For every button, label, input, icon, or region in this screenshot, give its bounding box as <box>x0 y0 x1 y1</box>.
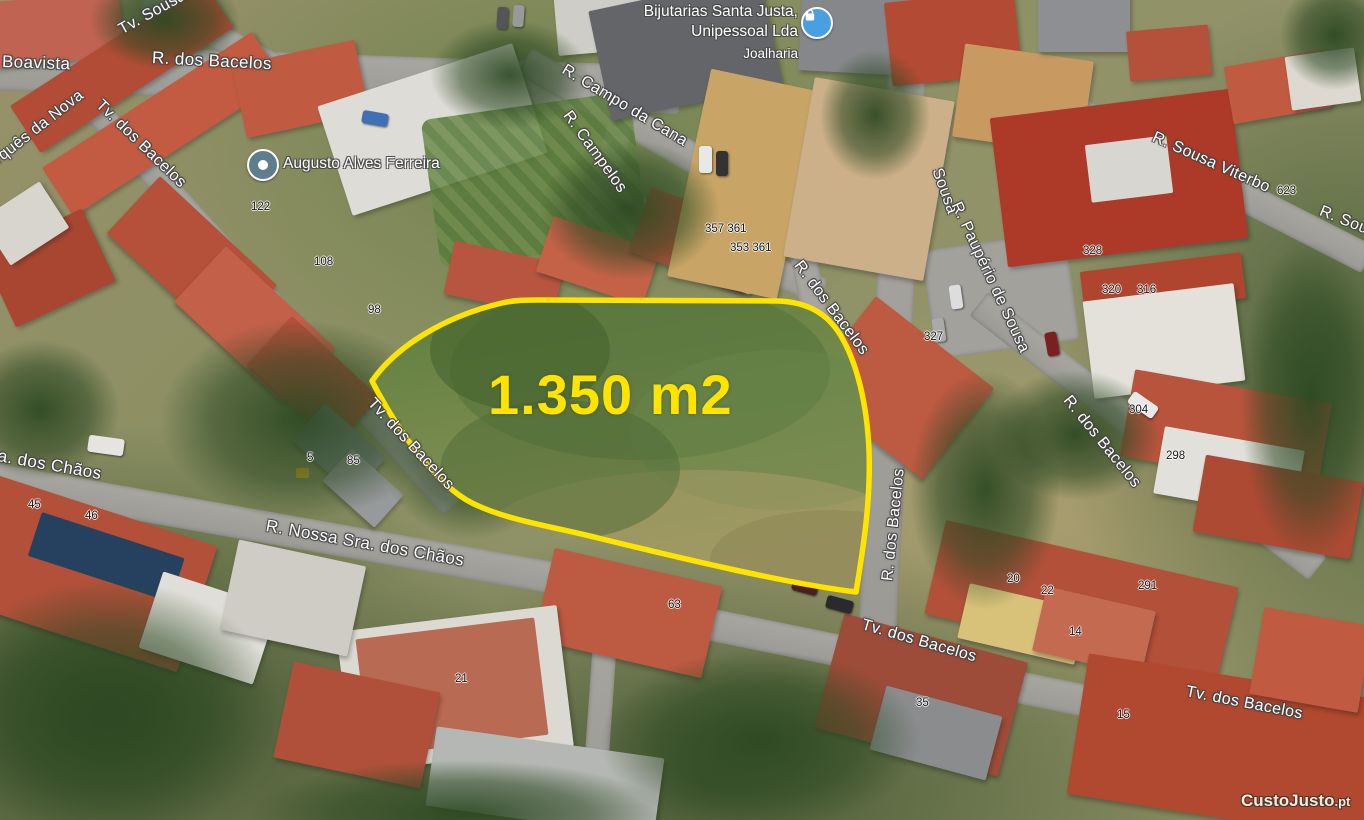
house-number: 298 <box>1166 450 1185 462</box>
poi-shop-category: Joalharia <box>598 46 798 61</box>
house-number: 46 <box>85 510 98 522</box>
house-number: 623 <box>1277 185 1296 197</box>
house-number: 35 <box>916 697 929 709</box>
house-number: 320 <box>1102 284 1121 296</box>
poi-shop-name-line1: Bijutarias Santa Justa, <box>598 2 798 22</box>
house-number: 328 <box>1083 245 1102 257</box>
house-number: 291 <box>1138 580 1157 592</box>
house-number: 20 <box>1007 573 1020 585</box>
house-number: 304 <box>1129 404 1148 416</box>
plot-area-label: 1.350 m2 <box>488 362 733 427</box>
house-number: 122 <box>251 201 270 213</box>
shopping-bag-icon <box>801 7 833 39</box>
house-number: 316 <box>1137 284 1156 296</box>
poi-shop-label: Bijutarias Santa Justa, Unipessoal Lda <box>598 2 798 42</box>
place-dot-icon <box>247 149 279 181</box>
house-number: 14 <box>1069 626 1082 638</box>
street-label: Boavista <box>2 52 71 74</box>
watermark-brand: CustoJusto <box>1241 791 1335 810</box>
house-number: 21 <box>455 673 468 685</box>
watermark: CustoJusto.pt <box>1241 791 1350 811</box>
house-number: 357 361 <box>705 223 747 235</box>
aerial-map: Boavista R. dos Bacelos Tv. Sousa rquês … <box>0 0 1364 820</box>
house-number: 5 <box>307 452 313 464</box>
house-number: 353 361 <box>730 242 772 254</box>
house-number: 63 <box>668 599 681 611</box>
house-number: 327 <box>924 331 943 343</box>
house-number: 108 <box>314 256 333 268</box>
house-number: 85 <box>347 455 360 467</box>
house-number: 22 <box>1041 585 1054 597</box>
house-number: 15 <box>1117 709 1130 721</box>
house-number: 98 <box>368 304 381 316</box>
poi-shop-name-line2: Unipessoal Lda <box>598 22 798 42</box>
house-number: 45 <box>28 499 41 511</box>
watermark-tld: .pt <box>1335 794 1351 809</box>
poi-place-name: Augusto Alves Ferreira <box>283 155 440 173</box>
